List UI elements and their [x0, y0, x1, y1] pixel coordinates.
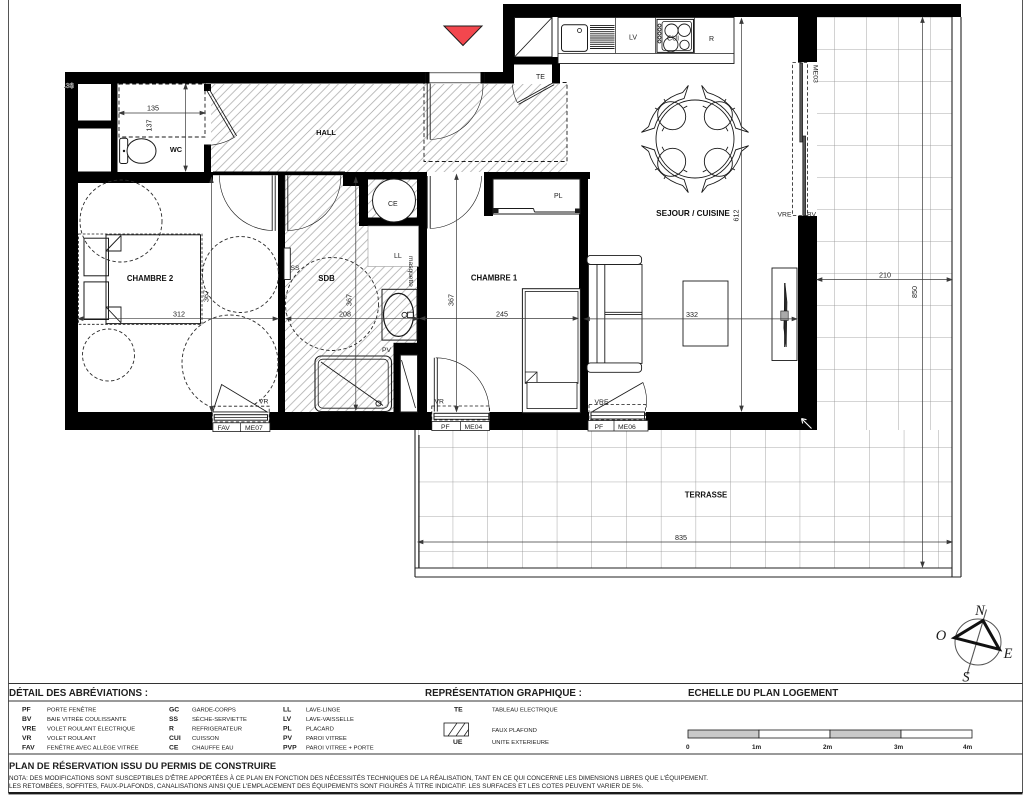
- svg-text:137: 137: [145, 120, 154, 132]
- svg-text:PV: PV: [382, 347, 392, 354]
- svg-text:NOTA: DES MODIFICATIONS SONT S: NOTA: DES MODIFICATIONS SONT SUSCEPTIBLE…: [9, 773, 708, 782]
- svg-text:UE: UE: [453, 739, 463, 746]
- svg-text:UNITE EXTERIEURE: UNITE EXTERIEURE: [492, 740, 549, 746]
- svg-text:2m: 2m: [823, 744, 833, 751]
- svg-text:PAROI VITREE + PORTE: PAROI VITREE + PORTE: [306, 746, 374, 752]
- svg-text:BV: BV: [22, 716, 32, 723]
- svg-text:O: O: [936, 628, 947, 644]
- svg-text:ME04: ME04: [465, 424, 483, 431]
- svg-text:VOLET ROULANT ÉLECTRIQUE: VOLET ROULANT ÉLECTRIQUE: [47, 726, 135, 733]
- svg-text:ECHELLE DU PLAN LOGEMENT: ECHELLE DU PLAN LOGEMENT: [688, 688, 838, 699]
- svg-text:CHAMBRE 1: CHAMBRE 1: [471, 274, 518, 283]
- svg-text:367: 367: [202, 290, 211, 302]
- svg-text:VOLET ROULANT: VOLET ROULANT: [47, 736, 96, 742]
- svg-text:SDB: SDB: [318, 274, 335, 283]
- svg-text:CHAUFFE EAU: CHAUFFE EAU: [192, 746, 234, 752]
- svg-text:332: 332: [686, 310, 698, 319]
- svg-text:ME03: ME03: [812, 65, 819, 83]
- svg-text:PLAN DE RÉSERVATION ISSU DU PE: PLAN DE RÉSERVATION ISSU DU PERMIS DE CO…: [9, 761, 276, 771]
- svg-text:CUISSON: CUISSON: [192, 736, 219, 742]
- svg-text:PL: PL: [283, 726, 292, 733]
- svg-text:367: 367: [345, 294, 354, 306]
- svg-text:masquette: masquette: [407, 256, 414, 287]
- svg-text:0: 0: [686, 744, 690, 751]
- svg-text:HALL: HALL: [316, 128, 336, 137]
- svg-text:CUI: CUI: [169, 735, 181, 742]
- svg-text:PF: PF: [441, 424, 450, 431]
- svg-text:FAV: FAV: [22, 745, 35, 752]
- svg-text:LES RETOMBÉES, SOFFITES, FAUX-: LES RETOMBÉES, SOFFITES, FAUX-PLAFONDS, …: [9, 781, 644, 790]
- svg-text:SS: SS: [169, 716, 179, 723]
- svg-text:3m: 3m: [894, 744, 904, 751]
- svg-text:REPRÉSENTATION GRAPHIQUE :: REPRÉSENTATION GRAPHIQUE :: [425, 687, 582, 699]
- svg-text:LAVE-LINGE: LAVE-LINGE: [306, 708, 340, 714]
- svg-text:WC: WC: [170, 145, 183, 154]
- svg-text:135: 135: [147, 104, 159, 113]
- svg-text:PVP: PVP: [283, 745, 297, 752]
- svg-text:210: 210: [879, 271, 891, 280]
- svg-text:ME07: ME07: [245, 425, 263, 432]
- svg-text:VRE: VRE: [22, 726, 36, 733]
- svg-text:1m: 1m: [752, 744, 762, 751]
- svg-text:PF: PF: [595, 424, 604, 431]
- svg-text:.3$: .3$: [64, 81, 75, 90]
- svg-text:BAIE VITRÉE COULISSANTE: BAIE VITRÉE COULISSANTE: [47, 716, 127, 723]
- svg-text:R: R: [709, 36, 714, 43]
- svg-text:VRE: VRE: [778, 212, 792, 219]
- svg-text:LV: LV: [283, 716, 292, 723]
- svg-text:245: 245: [496, 309, 508, 318]
- svg-text:VRE: VRE: [595, 399, 609, 406]
- svg-text:PL: PL: [554, 193, 563, 200]
- svg-text:VR: VR: [259, 399, 269, 406]
- svg-text:208: 208: [339, 310, 351, 319]
- svg-text:TABLEAU ELECTRIQUE: TABLEAU ELECTRIQUE: [492, 708, 558, 714]
- svg-text:TE: TE: [454, 707, 463, 714]
- svg-text:LAVE-VAISSELLE: LAVE-VAISSELLE: [306, 717, 354, 723]
- svg-text:PAROI VITREE: PAROI VITREE: [306, 736, 347, 742]
- svg-text:GARDE-CORPS: GARDE-CORPS: [192, 708, 236, 714]
- svg-text:312: 312: [173, 310, 185, 319]
- svg-text:R: R: [169, 726, 174, 733]
- svg-text:VR: VR: [435, 399, 445, 406]
- svg-text:VR: VR: [22, 735, 32, 742]
- svg-text:PLACARD: PLACARD: [306, 727, 334, 733]
- svg-text:FENÊTRE AVEC ALLÈGE VITRÉE: FENÊTRE AVEC ALLÈGE VITRÉE: [47, 744, 139, 752]
- svg-text:PF: PF: [22, 707, 31, 714]
- svg-text:PORTE FENÊTRE: PORTE FENÊTRE: [47, 706, 96, 714]
- svg-text:N: N: [974, 603, 986, 619]
- svg-text:850: 850: [910, 286, 919, 298]
- svg-text:SEJOUR / CUISINE: SEJOUR / CUISINE: [656, 209, 730, 218]
- svg-text:CHAMBRE 2: CHAMBRE 2: [127, 274, 174, 283]
- svg-text:SS: SS: [291, 265, 301, 272]
- svg-text:PV: PV: [283, 735, 293, 742]
- svg-text:4m: 4m: [963, 744, 973, 751]
- svg-text:CE: CE: [169, 745, 179, 752]
- svg-text:BV: BV: [807, 212, 817, 219]
- svg-text:CE: CE: [388, 201, 398, 208]
- svg-text:DÉTAIL DES ABRÉVIATIONS :: DÉTAIL DES ABRÉVIATIONS :: [9, 687, 148, 699]
- svg-text:REFRIGERATEUR: REFRIGERATEUR: [192, 727, 242, 733]
- svg-text:E: E: [1003, 646, 1013, 662]
- svg-text:LL: LL: [283, 707, 291, 714]
- svg-text:FAV: FAV: [218, 425, 231, 432]
- svg-text:TERRASSE: TERRASSE: [685, 491, 727, 500]
- svg-text:LL: LL: [394, 253, 402, 260]
- svg-text:ME06: ME06: [618, 424, 636, 431]
- svg-text:612: 612: [732, 210, 741, 222]
- svg-text:367: 367: [447, 294, 456, 306]
- svg-text:LV: LV: [629, 35, 637, 42]
- svg-text:CUI: CUI: [667, 36, 679, 43]
- svg-text:TE: TE: [536, 74, 545, 81]
- svg-text:SÈCHE-SERVIETTE: SÈCHE-SERVIETTE: [192, 716, 247, 723]
- svg-text:GC: GC: [169, 707, 179, 714]
- svg-text:S: S: [962, 670, 970, 686]
- svg-text:FAUX PLAFOND: FAUX PLAFOND: [492, 728, 537, 734]
- svg-text:835: 835: [675, 533, 687, 542]
